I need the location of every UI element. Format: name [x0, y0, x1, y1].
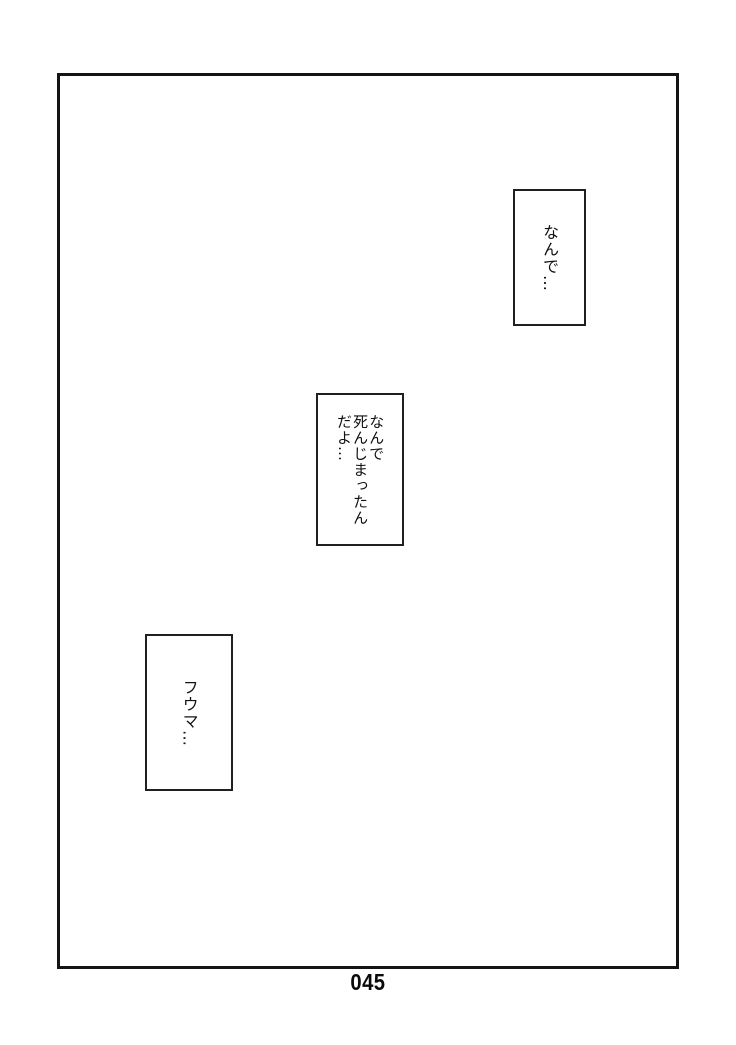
speech-bubble: フウマ… [145, 634, 233, 791]
speech-bubble: なんで 死んじまったん だよ… [316, 393, 404, 546]
speech-text: なんで… [540, 224, 559, 292]
manga-page: なんで… なんで 死んじまったん だよ… フウマ… 045 [0, 0, 736, 1045]
speech-text: フウマ… [179, 679, 198, 747]
page-number-row: 045 [0, 971, 736, 994]
page-number: 045 [350, 971, 385, 994]
speech-text: なんで 死んじまったん だよ… [336, 414, 385, 526]
speech-bubble: なんで… [513, 189, 586, 326]
